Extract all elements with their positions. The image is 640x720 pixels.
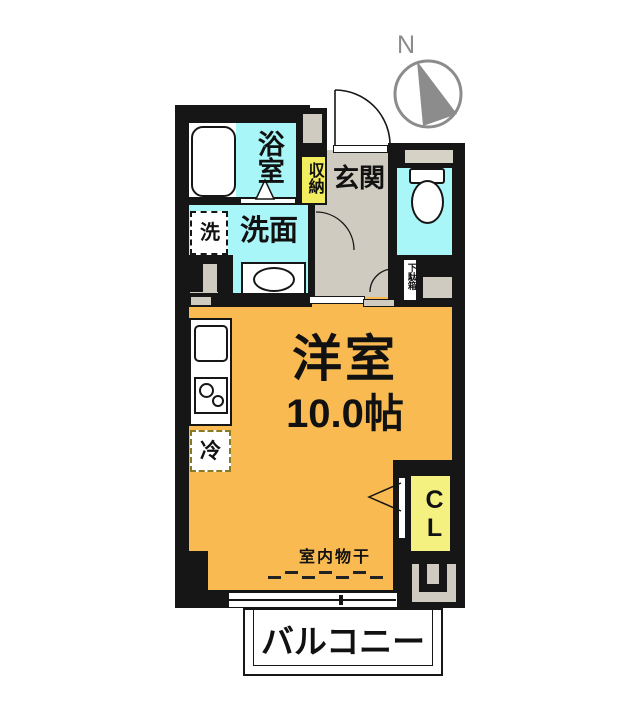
bath-label: 浴室 (253, 130, 283, 184)
refrigerator-label: 冷 (200, 440, 221, 463)
kitchen-sink (194, 325, 228, 362)
drying-dash (319, 571, 332, 574)
vanity-basin (253, 267, 295, 292)
shoe-cabinet-label: 下駄箱 (406, 263, 416, 290)
washroom-label: 洗面 (229, 216, 309, 248)
balcony-label: バルコニー (255, 624, 431, 660)
wall-left (175, 105, 189, 608)
drying-dash (336, 576, 349, 579)
floor-plan: 下駄箱 洗 冷 (0, 0, 640, 720)
drying-dash (353, 571, 366, 574)
bathtub (191, 126, 236, 197)
toilet-bottom-block: 下駄箱 (388, 255, 465, 307)
drying-dash (285, 571, 298, 574)
toilet-door-swing-icon (366, 264, 398, 296)
main-room-name: 洋室 (275, 332, 415, 387)
pipe-space-inset-top (203, 264, 217, 292)
wall-room-top-left (189, 293, 312, 307)
sliding-door-panel-1 (309, 296, 365, 304)
counter-edge (191, 297, 211, 305)
pipe-u-bottom (419, 584, 447, 592)
kitchen-unit (189, 318, 232, 426)
storage-box: 収納 (300, 155, 327, 205)
kitchen-stove (194, 377, 228, 414)
washer-space: 洗 (190, 211, 228, 255)
window-rail (229, 599, 396, 601)
balcony: バルコニー (243, 608, 443, 676)
window-lock-tick (339, 595, 343, 605)
burner-large (199, 383, 214, 398)
wall-entry-right (388, 143, 465, 168)
toilet-window (405, 150, 453, 163)
storage-label: 収納 (305, 162, 323, 194)
meter-box (303, 114, 322, 143)
vanity-counter (241, 262, 306, 295)
main-room-size: 10.0帖 (260, 392, 430, 436)
toilet-block-inset (423, 277, 452, 298)
washer-label: 洗 (200, 222, 220, 244)
drying-dash (268, 576, 281, 579)
burner-small (212, 395, 224, 407)
entry-door-swing-icon (328, 84, 394, 150)
refrigerator-space: 冷 (190, 430, 231, 472)
drying-dash (302, 576, 315, 579)
sliding-door-panel-2 (363, 299, 395, 307)
drying-dash (370, 576, 383, 579)
closet-label: CL (420, 486, 448, 542)
toilet-bowl (411, 180, 444, 224)
closet-box: CL (409, 474, 452, 553)
balcony-window (228, 592, 398, 608)
pipe-space-bottom (412, 564, 456, 602)
wall-entry-left-block (298, 108, 327, 157)
washroom-door-swing-icon (312, 208, 358, 254)
corner-bottom-left (175, 566, 208, 608)
entrance-label: 玄関 (330, 164, 388, 193)
indoor-drying-label: 室内物干 (280, 549, 390, 567)
shoe-cabinet-box: 下駄箱 (403, 259, 417, 301)
wall-top (175, 105, 310, 123)
compass-north-label: N (397, 32, 415, 60)
closet-door-mark-icon (365, 480, 403, 514)
